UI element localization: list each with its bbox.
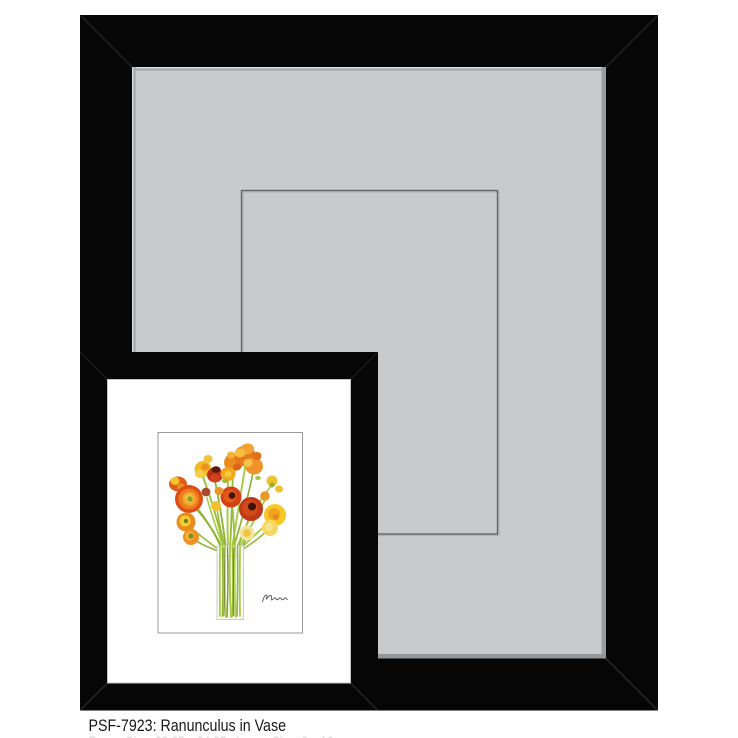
- svg-text:Frame Size: 20.25 x 24.25 : Im: Frame Size: 20.25 x 24.25 : Image Size: …: [89, 734, 334, 738]
- svg-text:PSF-7923: Ranunculus in Vase: PSF-7923: Ranunculus in Vase: [89, 717, 287, 735]
